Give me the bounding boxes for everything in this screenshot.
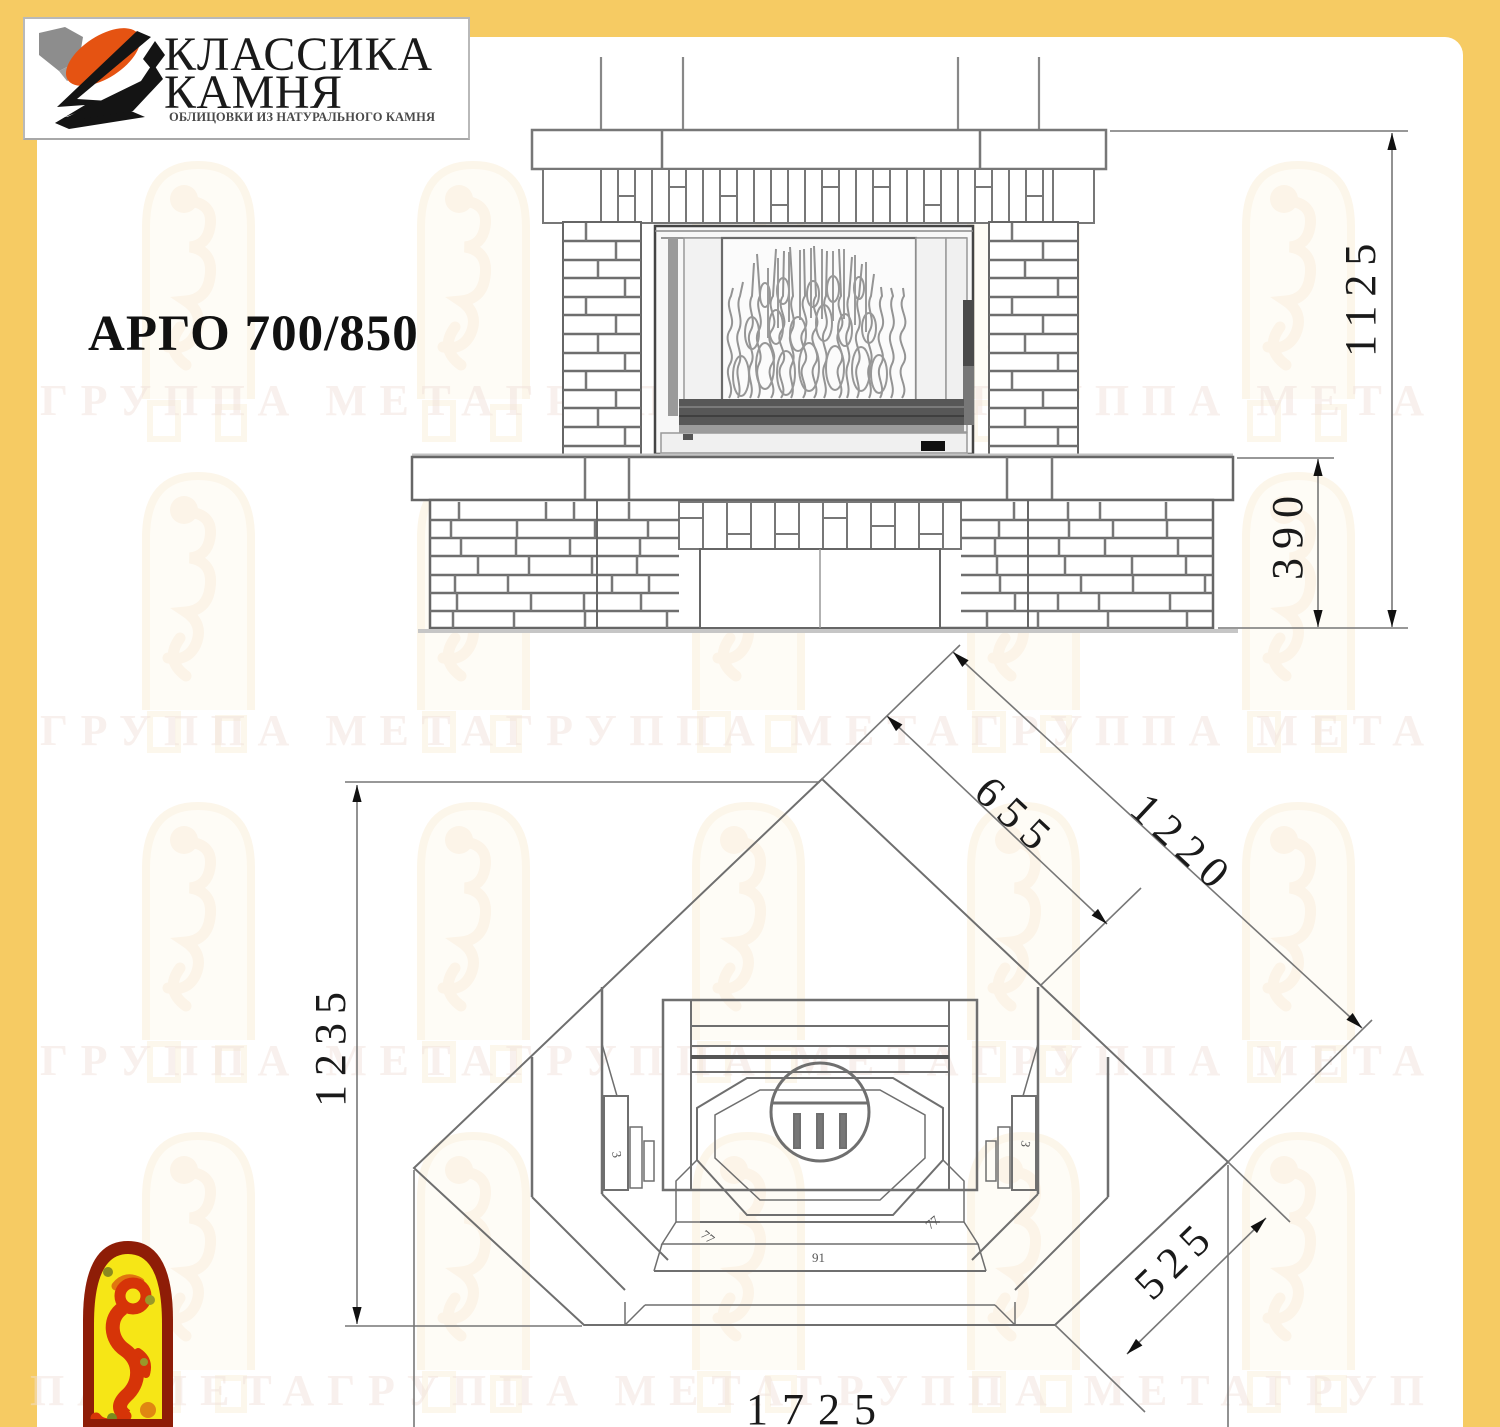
svg-text:91: 91 bbox=[812, 1250, 825, 1265]
svg-text:3: 3 bbox=[609, 1150, 625, 1159]
svg-text:ГРУППА МЕТАГРУППА МЕТАГРУППА М: ГРУППА МЕТАГРУППА МЕТАГРУППА МЕТА bbox=[40, 1036, 1430, 1085]
svg-text:ОБЛИЦОВКИ ИЗ НАТУРАЛЬНОГО КАМН: ОБЛИЦОВКИ ИЗ НАТУРАЛЬНОГО КАМНЯ bbox=[169, 110, 435, 124]
svg-text:390: 390 bbox=[1263, 487, 1312, 580]
svg-text:1235: 1235 bbox=[306, 983, 355, 1107]
svg-text:525: 525 bbox=[1125, 1209, 1226, 1309]
svg-text:1220: 1220 bbox=[1121, 783, 1245, 903]
svg-text:1125: 1125 bbox=[1336, 235, 1385, 357]
svg-text:ГРУППА МЕТАГРУППА МЕТАГРУППА М: ГРУППА МЕТАГРУППА МЕТАГРУППА МЕТА bbox=[40, 706, 1430, 755]
svg-text:77: 77 bbox=[922, 1212, 942, 1232]
